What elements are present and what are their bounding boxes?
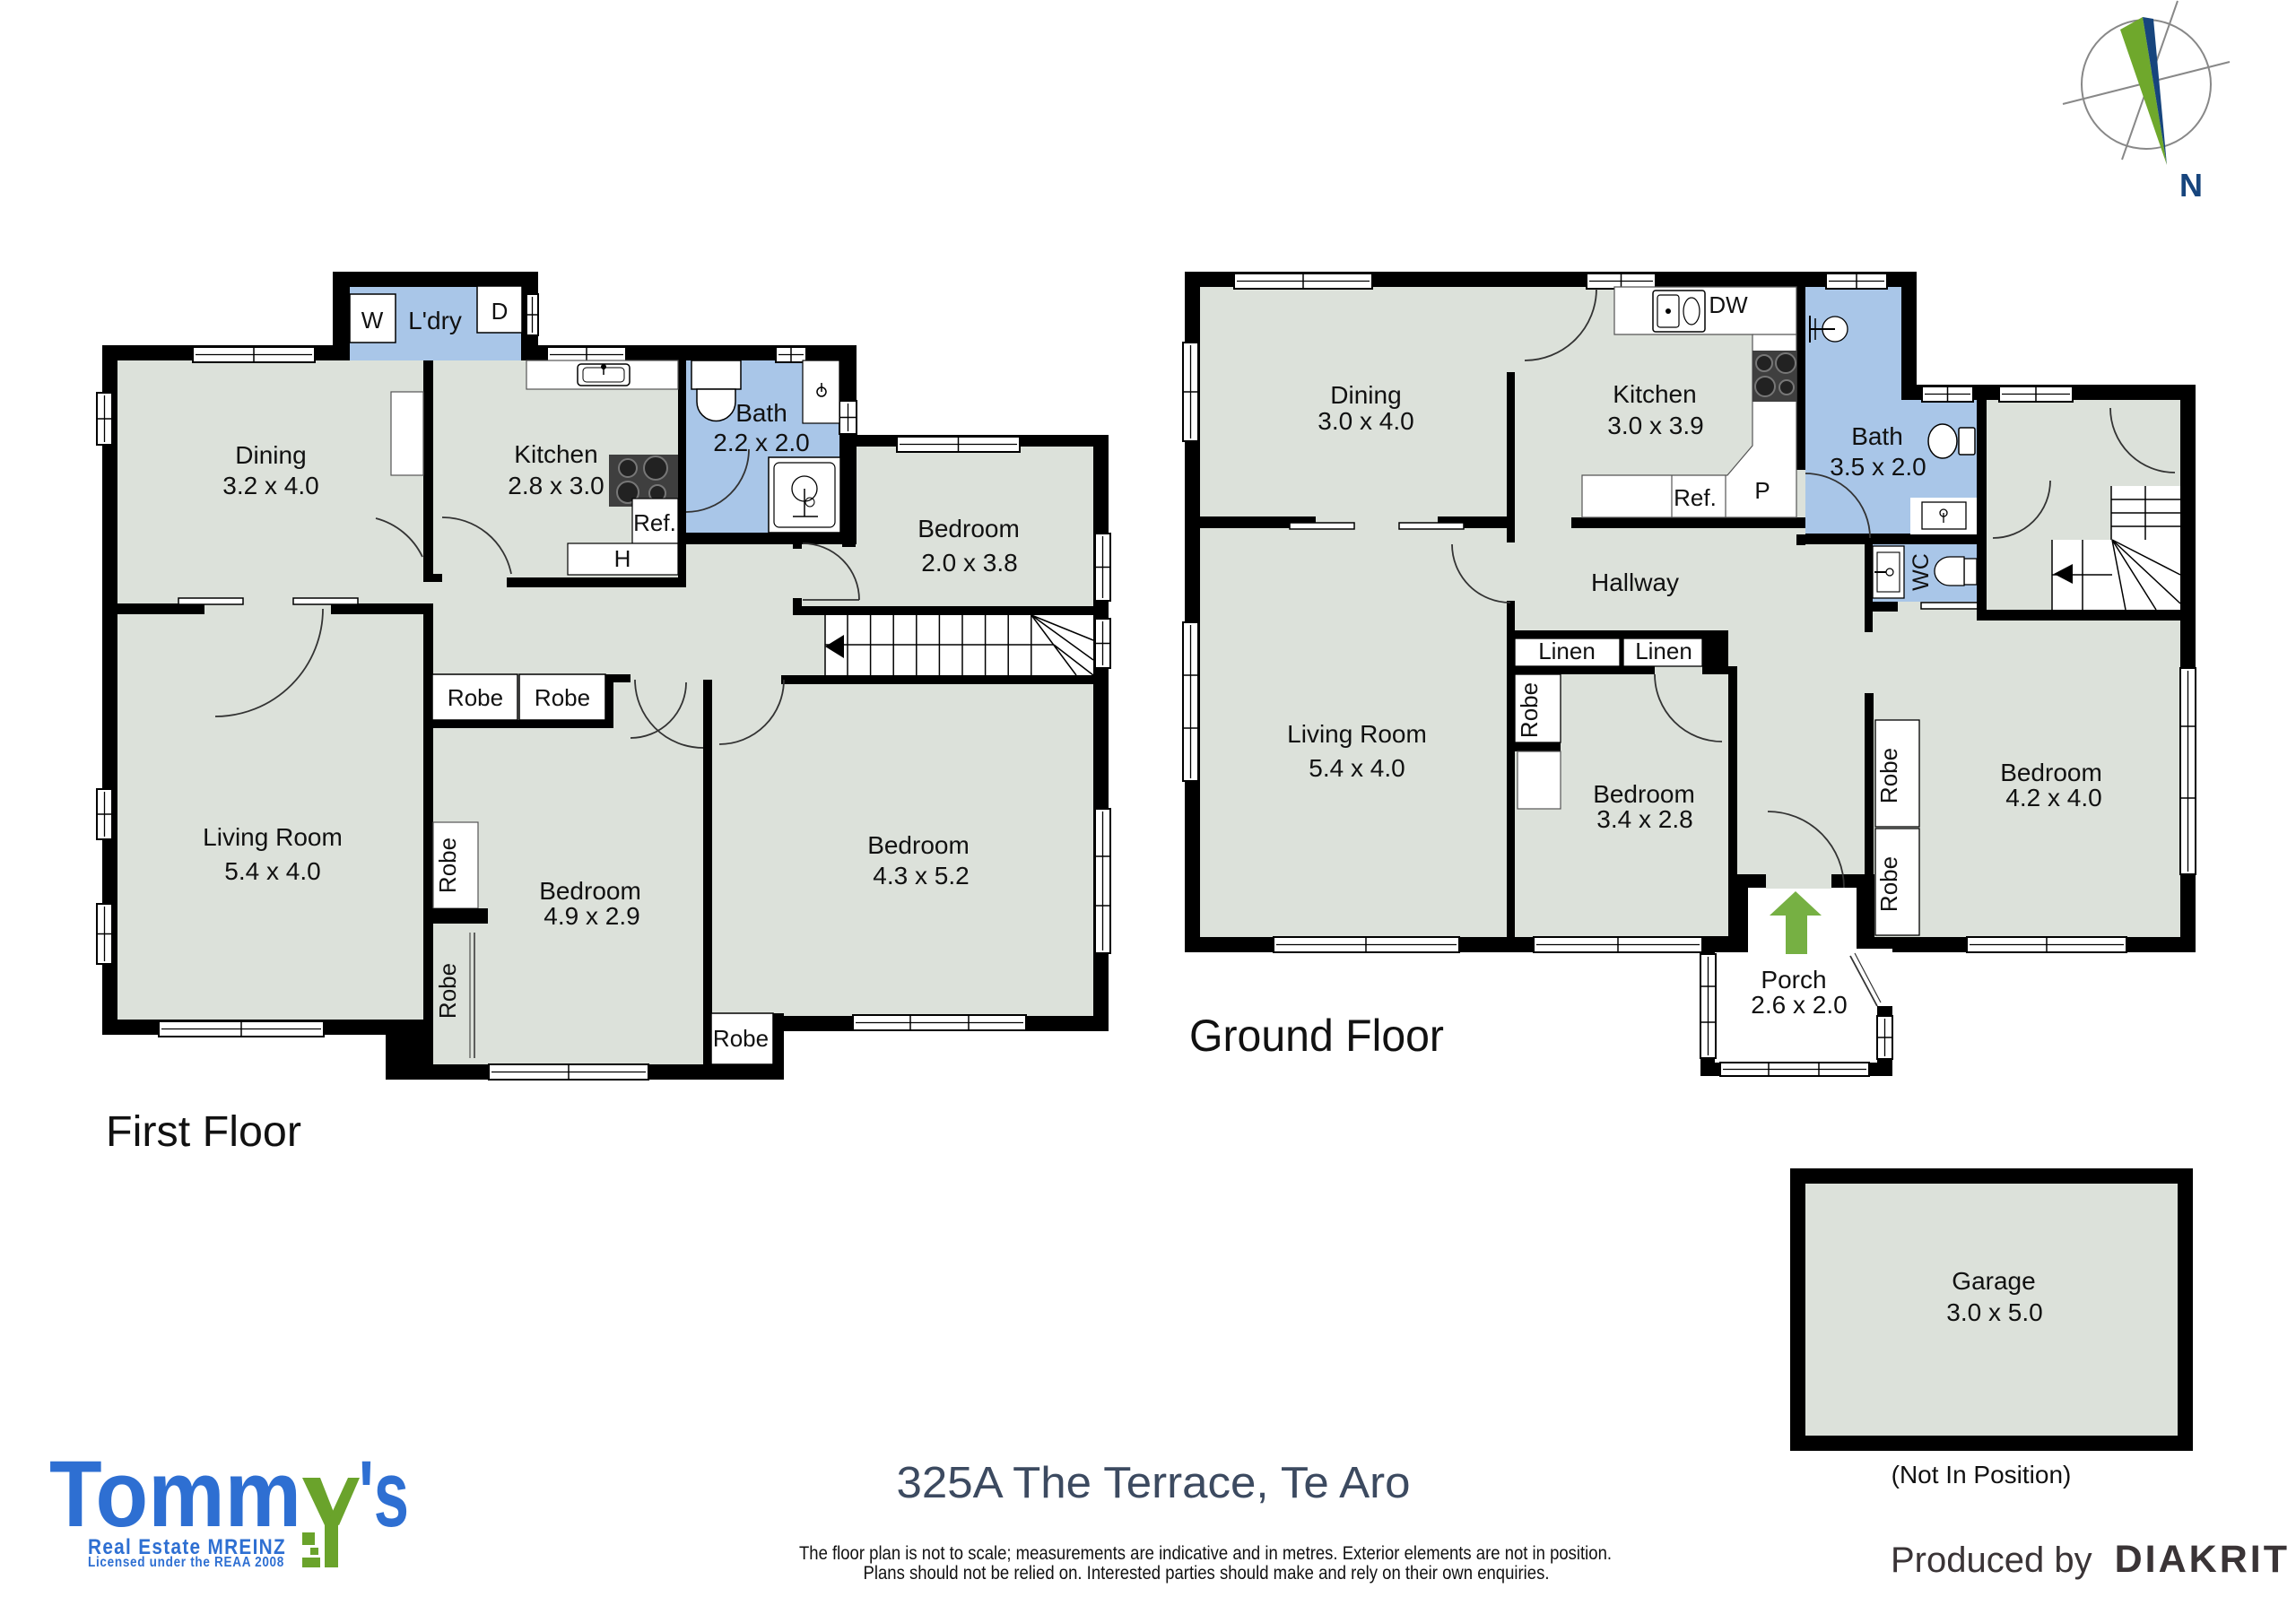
svg-text:Linen: Linen [1635,638,1692,664]
svg-text:Robe: Robe [713,1025,769,1052]
svg-text:Robe: Robe [434,963,461,1019]
svg-text:3.0 x 4.0: 3.0 x 4.0 [1318,407,1413,435]
svg-text:Porch: Porch [1761,966,1826,994]
svg-text:5.4 x 4.0: 5.4 x 4.0 [224,857,320,885]
svg-text:Dining: Dining [235,441,306,469]
svg-text:Robe: Robe [1875,856,1902,912]
svg-text:4.2 x 4.0: 4.2 x 4.0 [2005,784,2101,811]
svg-text:Ref.: Ref. [1674,484,1717,511]
svg-text:W: W [361,307,384,334]
svg-text:3.0 x 3.9: 3.0 x 3.9 [1607,412,1703,439]
svg-text:Licensed under the REAA 2008: Licensed under the REAA 2008 [88,1555,284,1570]
svg-text:Robe: Robe [535,684,590,711]
svg-text:L'dry: L'dry [408,307,462,334]
svg-text:2.0 x 3.8: 2.0 x 3.8 [921,549,1017,577]
svg-text:DIAKRIT: DIAKRIT [2115,1538,2290,1581]
svg-text:325A The Terrace, Te Aro: 325A The Terrace, Te Aro [897,1459,1411,1507]
svg-text:Robe: Robe [1516,682,1543,738]
svg-text:Bedroom: Bedroom [867,831,970,859]
svg-text:Living Room: Living Room [1287,720,1427,748]
svg-text:Linen: Linen [1538,638,1596,664]
svg-text:Kitchen: Kitchen [1613,380,1696,408]
svg-text:Plans should not be relied on.: Plans should not be relied on. Intereste… [864,1563,1550,1584]
svg-text:Robe: Robe [448,684,503,711]
svg-text:Bedroom: Bedroom [2000,759,2102,786]
svg-text:3.4 x 2.8: 3.4 x 2.8 [1596,805,1692,833]
svg-text:D: D [491,298,509,325]
svg-text:2.2 x 2.0: 2.2 x 2.0 [713,429,809,456]
svg-text:Kitchen: Kitchen [514,440,597,468]
svg-text:2.6 x 2.0: 2.6 x 2.0 [1751,991,1847,1019]
svg-text:WC: WC [1909,553,1934,591]
svg-text:N: N [2179,167,2203,204]
svg-text:Bedroom: Bedroom [918,515,1020,542]
svg-text:3.0 x 5.0: 3.0 x 5.0 [1946,1298,2042,1326]
svg-text:Garage: Garage [1952,1267,2035,1295]
svg-text:Living Room: Living Room [203,823,343,851]
svg-text:Hallway: Hallway [1591,568,1679,596]
svg-text:5.4 x 4.0: 5.4 x 4.0 [1309,754,1405,782]
svg-text:Bath: Bath [735,399,787,427]
svg-text:3.2 x 4.0: 3.2 x 4.0 [222,472,318,499]
svg-text:3.5 x 2.0: 3.5 x 2.0 [1830,453,1926,481]
svg-text:Produced by: Produced by [1891,1541,2092,1580]
svg-text:Ground Floor: Ground Floor [1189,1011,1444,1061]
svg-text:DW: DW [1709,291,1748,318]
svg-text:Robe: Robe [1875,748,1902,803]
svg-text:'s: 's [359,1442,409,1547]
svg-text:Ref.: Ref. [633,509,676,536]
svg-text:First Floor: First Floor [106,1108,301,1156]
svg-text:Tomm: Tomm [49,1442,301,1547]
svg-text:H: H [614,545,631,572]
svg-text:(Not In Position): (Not In Position) [1892,1461,2072,1488]
svg-text:Robe: Robe [434,838,461,893]
svg-text:4.9 x 2.9: 4.9 x 2.9 [544,902,639,930]
svg-text:P: P [1754,477,1770,504]
svg-text:Bath: Bath [1851,422,1903,450]
svg-text:Bedroom: Bedroom [539,877,641,905]
svg-text:Dining: Dining [1330,381,1401,409]
svg-text:4.3 x 5.2: 4.3 x 5.2 [873,862,969,890]
svg-text:Bedroom: Bedroom [1593,780,1695,808]
svg-text:The floor plan is not to scale: The floor plan is not to scale; measurem… [799,1543,1612,1564]
svg-text:2.8 x 3.0: 2.8 x 3.0 [508,472,604,499]
